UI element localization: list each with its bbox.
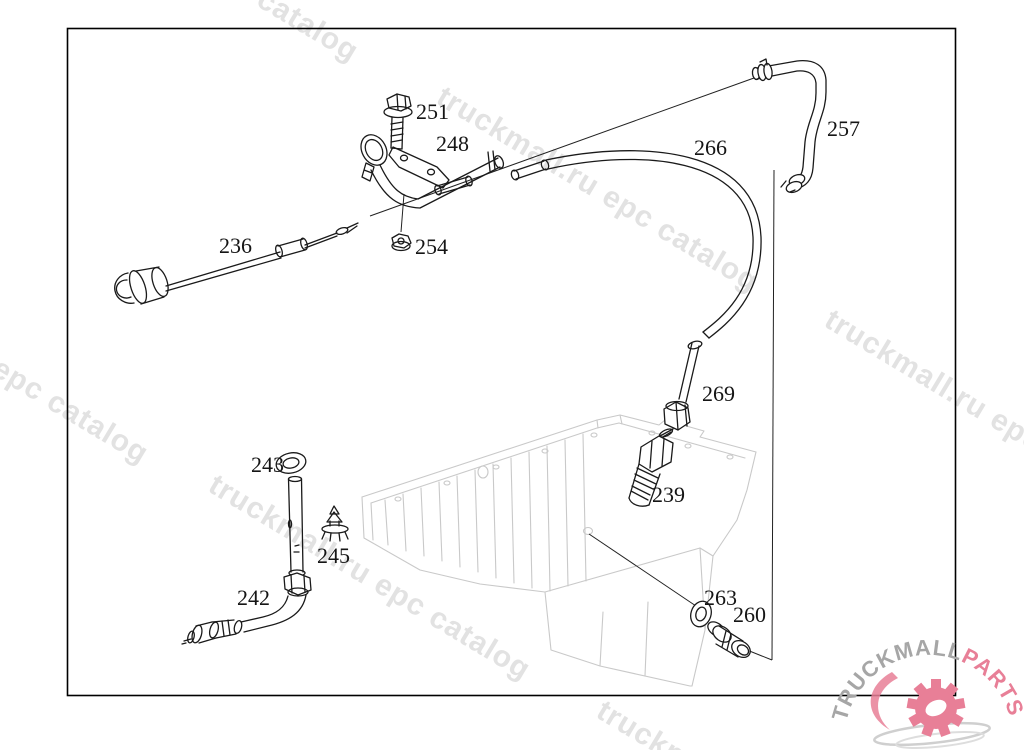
part-label-266: 266: [694, 135, 727, 161]
parts-catalog-page: truckmall.ru epc catalog truckmall.ru ep…: [0, 0, 1024, 750]
logo-suffix-text: PARTS: [958, 643, 1024, 719]
part-242-guide-tube: [182, 477, 311, 645]
oil-pan-outline: [362, 415, 756, 686]
part-254-nut: [392, 234, 411, 251]
part-label-242: 242: [237, 585, 270, 611]
part-245-clip: [322, 506, 348, 541]
part-label-239: 239: [652, 482, 685, 508]
truckmall-parts-logo: TRUCKMALLPARTS: [828, 628, 1024, 750]
part-266-hose: [546, 151, 761, 338]
part-label-251: 251: [416, 99, 449, 125]
part-label-260: 260: [733, 602, 766, 628]
part-label-245: 245: [317, 543, 350, 569]
part-257-pipe: [752, 59, 826, 194]
part-label-236: 236: [219, 233, 252, 259]
part-251-bolt: [384, 94, 412, 149]
part-label-257: 257: [827, 116, 860, 142]
part-label-269: 269: [702, 381, 735, 407]
part-label-254: 254: [415, 234, 448, 260]
part-label-248: 248: [436, 131, 469, 157]
diagram-frame: [68, 29, 956, 696]
part-label-243: 243: [251, 452, 284, 478]
part-269-hose-end: [664, 340, 703, 430]
